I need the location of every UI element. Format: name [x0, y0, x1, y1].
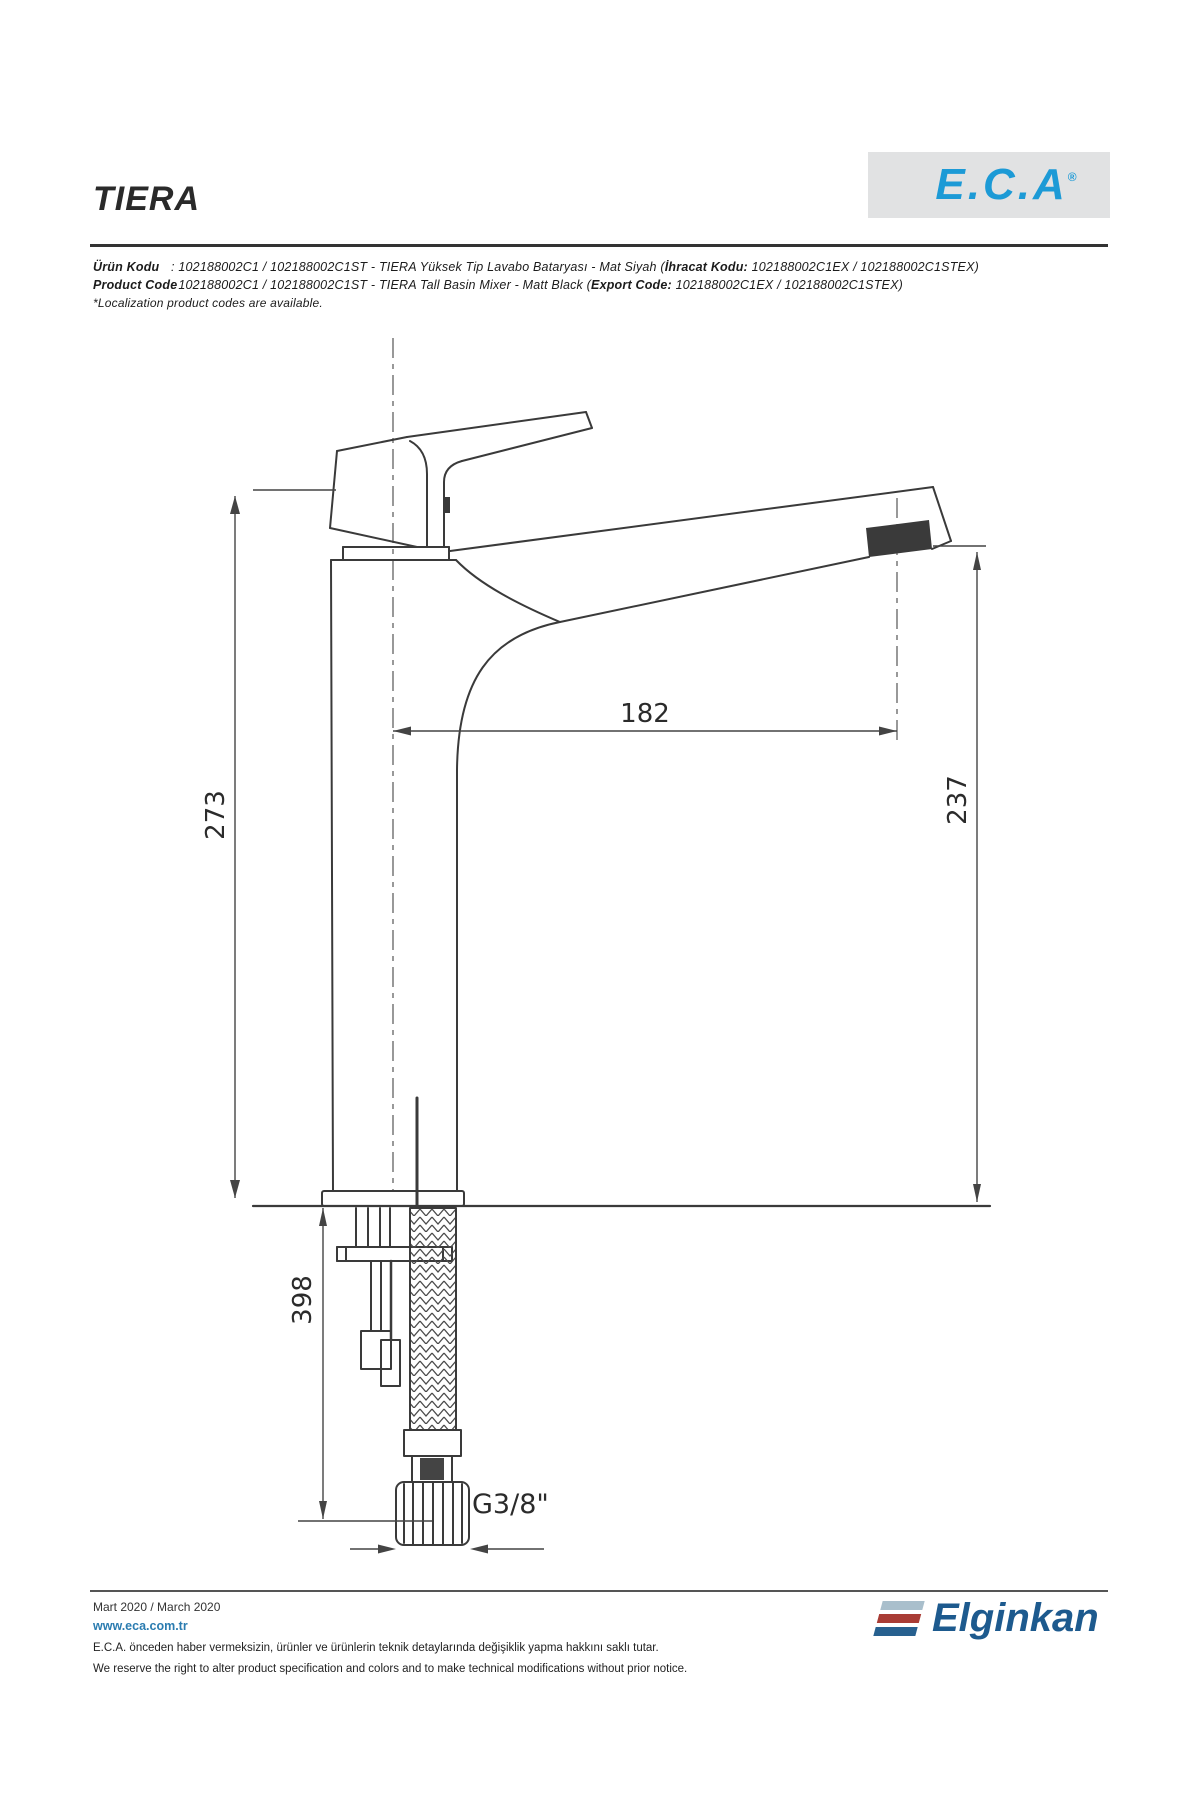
product-code-label-en: Product Code: [93, 276, 171, 294]
product-code-line-tr: Ürün Kodu: 102188002C1 / 102188002C1ST -…: [93, 258, 1113, 276]
localization-note: *Localization product codes are availabl…: [93, 294, 1113, 312]
dim-label-hose-length: 398: [288, 1275, 318, 1325]
dim-label-total-height: 273: [201, 790, 231, 840]
faucet-filled-details: [443, 497, 932, 557]
dimension-arrowheads: [230, 496, 981, 1554]
elginkan-bars-icon: [873, 1599, 925, 1638]
centerlines: [393, 338, 897, 1190]
dim-label-connection-thread: G3/8": [472, 1489, 549, 1520]
footer-rule: [90, 1590, 1108, 1592]
dim-label-spout-height: 237: [943, 775, 973, 825]
footer-legal-en: We reserve the right to alter product sp…: [93, 1663, 687, 1675]
datasheet-page: 273 182 237 398 G3/8" TIERA E.C.A® Ürün …: [0, 0, 1200, 1800]
footer-website-link[interactable]: www.eca.com.tr: [93, 1619, 188, 1633]
eca-logo: E.C.A®: [868, 152, 1110, 218]
product-codes: Ürün Kodu: 102188002C1 / 102188002C1ST -…: [93, 258, 1113, 312]
dimension-lines: [235, 490, 986, 1549]
footer-legal-tr: E.C.A. önceden haber vermeksizin, ürünle…: [93, 1642, 659, 1654]
registered-mark: ®: [1068, 170, 1077, 184]
dim-label-spout-reach: 182: [620, 699, 670, 729]
eca-logo-text: E.C.A®: [935, 163, 1076, 207]
title-rule: [90, 244, 1108, 247]
product-code-line-en: Product Code: 102188002C1 / 102188002C1S…: [93, 276, 1113, 294]
page-title: TIERA: [93, 180, 200, 219]
faucet-outline: [253, 412, 990, 1545]
footer-date: Mart 2020 / March 2020: [93, 1600, 220, 1614]
product-code-label-tr: Ürün Kodu: [93, 258, 171, 276]
elginkan-logo: Elginkan: [878, 1598, 1099, 1638]
elginkan-logo-text: Elginkan: [932, 1598, 1099, 1638]
